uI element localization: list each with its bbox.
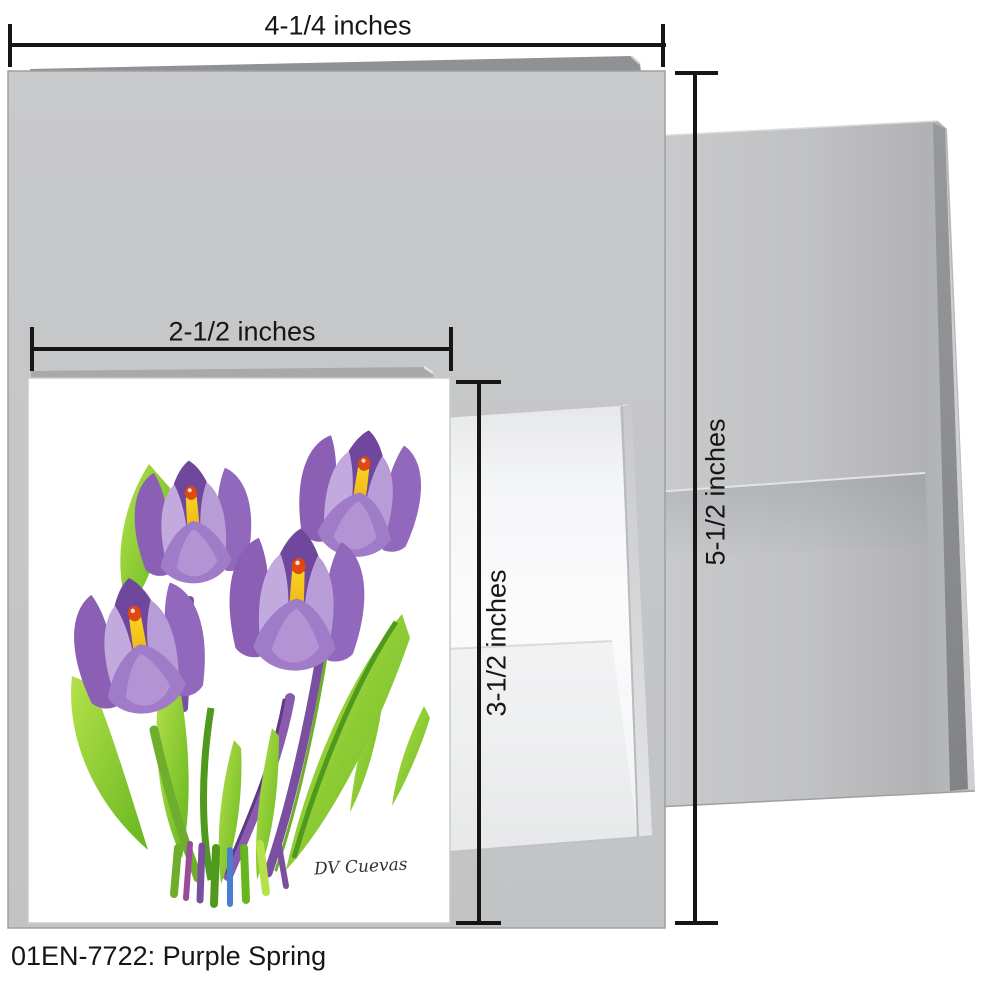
dim-label-small-height: 3-1/2 inches <box>484 569 511 716</box>
crocus-flower-3 <box>226 525 368 674</box>
scene-graphic: DV Cuevas <box>0 0 984 984</box>
base-stroke-green-1 <box>174 848 178 894</box>
base-stroke-darkgreen <box>214 848 216 904</box>
envelope-small-lower-shade <box>446 641 638 852</box>
dim-tick-small-width-right <box>449 327 453 371</box>
dim-tick-large-height-bottom <box>675 921 718 925</box>
envelope-small <box>446 404 652 852</box>
card-large-back-panel <box>30 56 641 72</box>
base-stroke-purple-1 <box>200 846 202 900</box>
base-stroke-magenta <box>186 844 190 898</box>
base-stroke-green-2 <box>244 848 246 900</box>
dim-tick-small-height-bottom <box>456 921 501 925</box>
dim-tick-large-width-left <box>8 24 12 67</box>
dim-tick-large-width-right <box>661 24 665 67</box>
dim-label-small-width: 2-1/2 inches <box>168 319 315 346</box>
product-caption: 01EN-7722: Purple Spring <box>11 941 326 972</box>
dim-tick-small-height-top <box>456 380 501 384</box>
dim-label-large-width: 4-1/4 inches <box>264 13 411 40</box>
dim-label-large-height: 5-1/2 inches <box>703 418 730 565</box>
dim-line-small-height <box>477 381 481 925</box>
product-mockup: DV Cuevas 4-1/4 inches 2-1/2 inches 3-1/… <box>0 0 984 984</box>
dim-tick-small-width-left <box>30 327 34 371</box>
dim-tick-large-height-top <box>675 71 718 75</box>
dim-line-large-width <box>8 43 666 47</box>
dim-line-small-width <box>31 347 453 351</box>
dim-line-large-height <box>693 72 697 925</box>
card-small: DV Cuevas <box>28 367 450 923</box>
